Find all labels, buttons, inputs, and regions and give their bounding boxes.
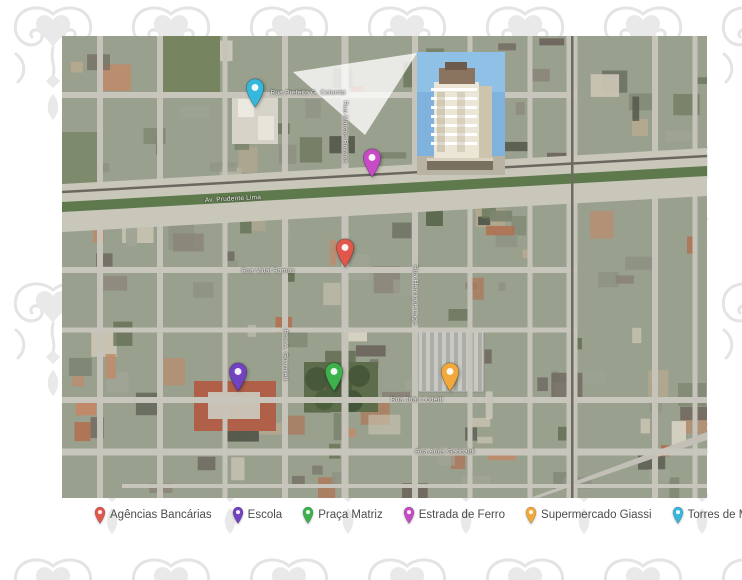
legend-item-torres-de-miro: Torres de Miró xyxy=(671,506,742,524)
map-pin-torres-de-miro xyxy=(243,77,267,108)
legend-item-escola: Escola xyxy=(231,506,283,524)
map-pin-escola xyxy=(226,361,250,392)
legend-item-agencias-bancarias: Agências Bancárias xyxy=(93,506,212,524)
legend-pin-icon-praca-matriz xyxy=(301,506,315,524)
map-pin-estrada-de-ferro xyxy=(360,147,384,178)
legend-item-estrada-de-ferro: Estrada de Ferro xyxy=(402,506,505,524)
page-root: Rua Prefeito G. ColombiRua Marcos Rovari… xyxy=(0,0,742,580)
legend-label: Agências Bancárias xyxy=(110,509,212,521)
legend-item-supermercado-giassi: Supermercado Giassi xyxy=(524,506,652,524)
legend-label: Supermercado Giassi xyxy=(541,509,652,521)
map-pin-praca-matriz xyxy=(322,361,346,392)
legend-pin-icon-estrada-de-ferro xyxy=(402,506,416,524)
legend-label: Estrada de Ferro xyxy=(419,509,505,521)
legend-pin-icon-supermercado-giassi xyxy=(524,506,538,524)
building-rendering-inset xyxy=(417,52,505,175)
legend-label: Praça Matriz xyxy=(318,509,383,521)
map-pin-supermercado-giassi xyxy=(438,361,462,392)
legend-label: Torres de Miró xyxy=(688,509,742,521)
legend-pin-icon-agencias-bancarias xyxy=(93,506,107,524)
satellite-map-image xyxy=(62,36,707,498)
legend-label: Escola xyxy=(248,509,283,521)
legend-item-praca-matriz: Praça Matriz xyxy=(301,506,383,524)
legend-pin-icon-torres-de-miro xyxy=(671,506,685,524)
map-pin-agencias-bancarias xyxy=(333,237,357,268)
satellite-map: Rua Prefeito G. ColombiRua Marcos Rovari… xyxy=(62,36,707,498)
legend-pin-icon-escola xyxy=(231,506,245,524)
legend: Agências BancáriasEscolaPraça MatrizEstr… xyxy=(93,506,742,524)
